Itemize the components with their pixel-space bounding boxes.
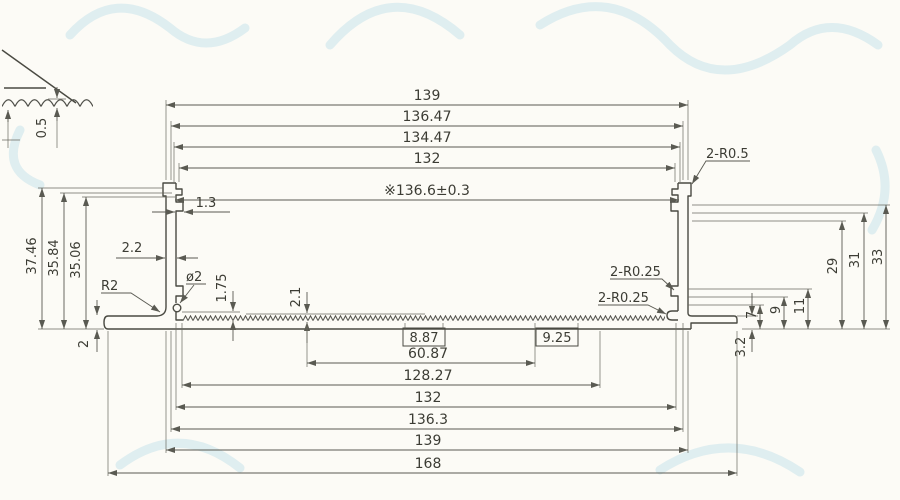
dim-wave-height: 0.5	[35, 118, 50, 139]
dim-right-radius-lower: 2-R0.25	[598, 291, 649, 306]
dim-foot-height: 3.2	[734, 337, 749, 358]
watermark	[13, 7, 885, 472]
dim-bottom-60-87: 60.87	[408, 346, 448, 362]
dim-boxed-8-87: 8.87	[410, 331, 439, 346]
dim-top-right-radius: 2-R0.5	[706, 147, 749, 162]
profile-base-bottom	[104, 323, 691, 330]
dim-wall-notch: 1.3	[196, 196, 217, 211]
dim-right-radius-upper: 2-R0.25	[610, 265, 661, 280]
dim-bottom-136-3: 136.3	[408, 412, 448, 428]
dim-right-7: 7	[745, 311, 760, 319]
dim-wall-thickness: 2.2	[122, 241, 143, 256]
top-dimensions: 139 136.47 134.47 132 ※136.6±0.3	[166, 88, 688, 200]
dim-left-35-84: 35.84	[47, 239, 62, 276]
dim-right-31: 31	[848, 252, 863, 269]
dim-bottom-132: 132	[415, 390, 442, 406]
dim-right-33: 33	[871, 249, 886, 266]
dim-inner-width: ※136.6±0.3	[384, 183, 470, 199]
dim-right-11: 11	[793, 298, 808, 315]
dim-top-134-47: 134.47	[403, 130, 452, 146]
detail-leader-line	[2, 50, 76, 103]
profile-left-wall-foot	[176, 312, 183, 320]
dim-right-9: 9	[769, 306, 784, 314]
technical-drawing: 0.5 139 136.47 134.47 13	[0, 0, 900, 500]
profile-left-wall-inner	[176, 183, 183, 303]
dim-bottom-168: 168	[415, 456, 442, 472]
profile-screw-hole	[173, 304, 181, 312]
profile-right-wall-inner	[671, 183, 678, 311]
dim-boxed-9-25: 9.25	[543, 331, 572, 346]
dim-left-37-46: 37.46	[25, 237, 40, 274]
dim-top-139: 139	[414, 88, 441, 104]
dim-bottom-139: 139	[415, 433, 442, 449]
dim-base-thickness: 2	[77, 340, 92, 348]
detail-wave-profile	[2, 97, 93, 109]
profile-serrated-surface	[183, 315, 665, 321]
dim-hole-offset: 1.75	[215, 274, 230, 303]
dim-hole-diameter: ø2	[186, 270, 202, 285]
dim-left-35-06: 35.06	[69, 241, 84, 278]
dim-bottom-128-27: 128.27	[404, 368, 453, 384]
dim-fillet-radius: R2	[101, 279, 118, 294]
right-dimensions: 7 9 11 29 31 33 3.2	[688, 205, 890, 357]
bottom-dimensions: 8.87 9.25 60.87 128.27 132 136.3 139 168	[108, 323, 737, 476]
dim-right-29: 29	[826, 258, 841, 275]
profile-right-wall-hook	[667, 311, 678, 320]
dim-top-132: 132	[414, 151, 441, 167]
dim-serration-height: 2.1	[289, 287, 304, 308]
left-dimensions: 37.46 35.84 35.06	[25, 188, 175, 329]
dim-top-136-47: 136.47	[403, 109, 452, 125]
technical-drawing-page: 0.5 139 136.47 134.47 13	[0, 0, 900, 500]
